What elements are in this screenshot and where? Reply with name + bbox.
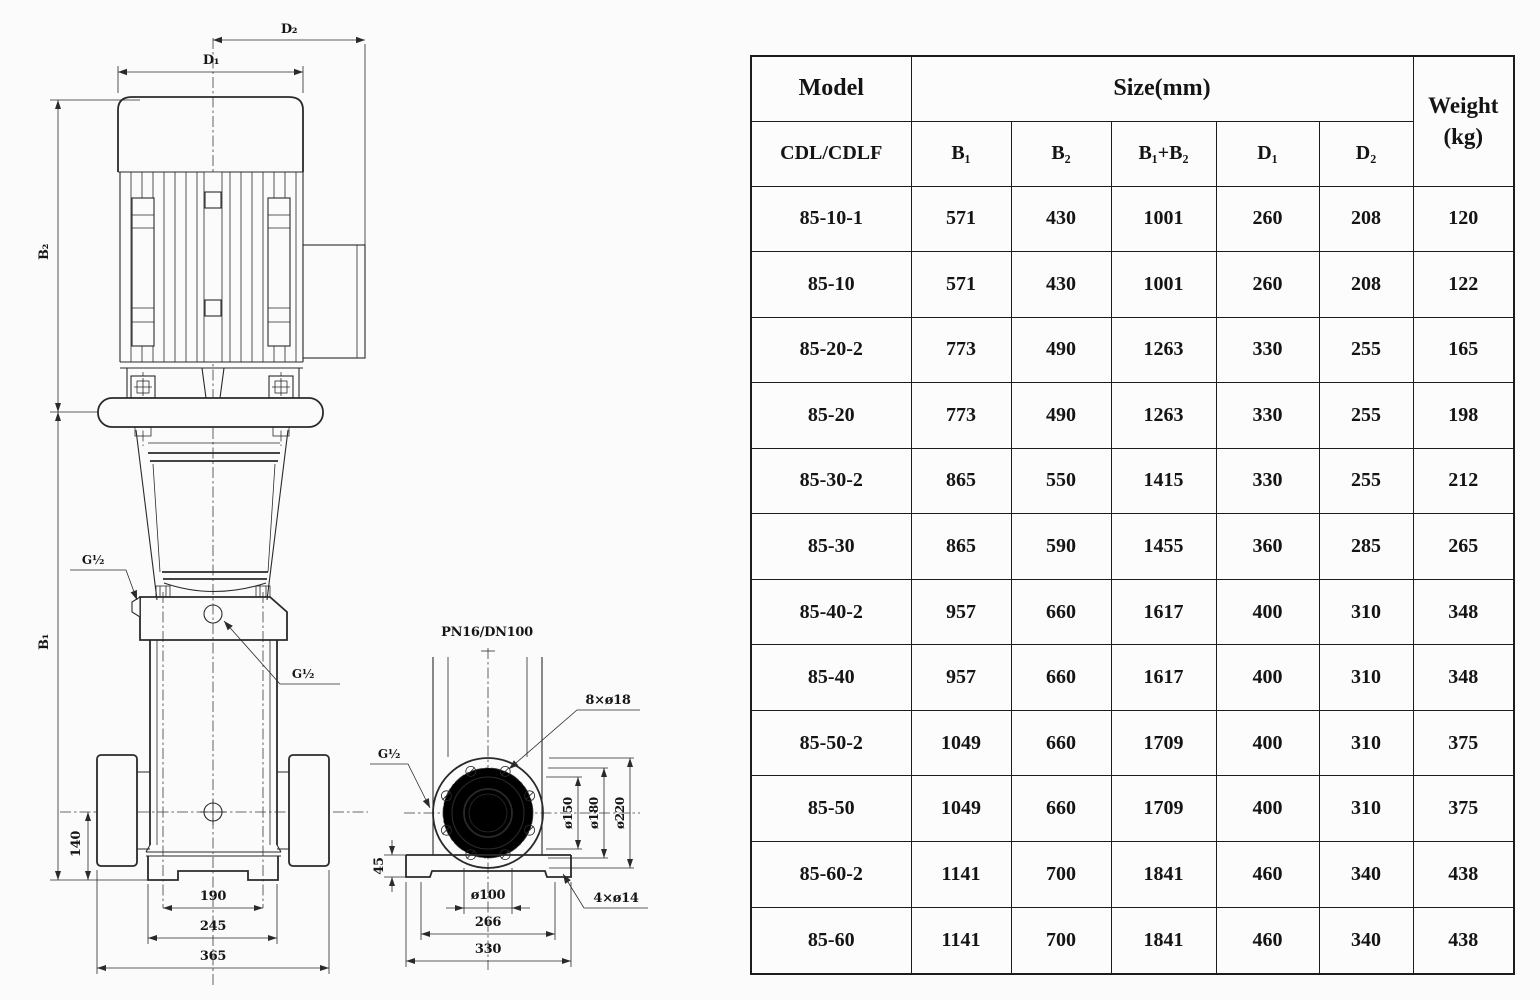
cell: 400 — [1216, 776, 1319, 842]
cell: 1617 — [1111, 579, 1216, 645]
cell: 375 — [1413, 710, 1514, 776]
cell: 122 — [1413, 252, 1514, 318]
dim-45-label: 45 — [372, 857, 387, 875]
pump-technical-drawing: D₂ D₁ B₂ B₁ — [0, 0, 740, 1000]
dim-d1-label: D₁ — [203, 53, 219, 68]
port-leader-right — [224, 621, 340, 684]
cell-model: 85-50-2 — [751, 710, 911, 776]
header-model: Model — [751, 56, 911, 121]
header-col-d2: D₂ — [1319, 121, 1413, 186]
cell: 348 — [1413, 645, 1514, 711]
cell: 1709 — [1111, 776, 1216, 842]
dim-330-label: 330 — [475, 942, 501, 957]
header-model-series: CDL/CDLF — [751, 121, 911, 186]
dim-45 — [384, 840, 406, 892]
cell: 571 — [911, 186, 1011, 252]
cell: 255 — [1319, 317, 1413, 383]
cell: 660 — [1011, 645, 1111, 711]
cell: 590 — [1011, 514, 1111, 580]
dim-d2-label: D₂ — [281, 22, 297, 37]
cell: 265 — [1413, 514, 1514, 580]
cell: 490 — [1011, 317, 1111, 383]
cell: 375 — [1413, 776, 1514, 842]
cell-model: 85-20 — [751, 383, 911, 449]
cell-model: 85-40-2 — [751, 579, 911, 645]
header-weight: Weight (kg) — [1413, 56, 1514, 186]
cell: 310 — [1319, 710, 1413, 776]
cell: 330 — [1216, 383, 1319, 449]
table-row: 85-5010496601709400310375 — [751, 776, 1514, 842]
header-col-b1: B₁ — [911, 121, 1011, 186]
cell: 700 — [1011, 907, 1111, 974]
dim-d1 — [118, 66, 303, 93]
cell: 438 — [1413, 907, 1514, 974]
table-row: 85-20-27734901263330255165 — [751, 317, 1514, 383]
cell: 1263 — [1111, 317, 1216, 383]
header-row-1: Model Size(mm) Weight (kg) — [751, 56, 1514, 121]
cell: 400 — [1216, 645, 1319, 711]
cell: 1263 — [1111, 383, 1216, 449]
cell: 438 — [1413, 841, 1514, 907]
cell: 550 — [1011, 448, 1111, 514]
coupling-lantern — [136, 430, 288, 600]
header-col-d1: D₁ — [1216, 121, 1319, 186]
cell: 212 — [1413, 448, 1514, 514]
cell: 1455 — [1111, 514, 1216, 580]
cell: 1141 — [911, 841, 1011, 907]
cell: 310 — [1319, 579, 1413, 645]
cell: 120 — [1413, 186, 1514, 252]
motor — [118, 97, 365, 398]
header-weight-line1: Weight — [1414, 90, 1514, 121]
cell: 571 — [911, 252, 1011, 318]
cell: 430 — [1011, 186, 1111, 252]
port-leader-left — [70, 570, 137, 600]
dim-140-label: 140 — [69, 831, 84, 857]
cell: 1617 — [1111, 645, 1216, 711]
cell: 198 — [1413, 383, 1514, 449]
flange-port-leader — [370, 764, 430, 808]
cell: 310 — [1319, 645, 1413, 711]
port-label-right: G½ — [292, 667, 314, 681]
flange-view: PN16/DN100 — [370, 625, 648, 970]
cell: 260 — [1216, 252, 1319, 318]
cell: 260 — [1216, 186, 1319, 252]
dim-266-label: 266 — [475, 915, 501, 930]
table-row: 85-207734901263330255198 — [751, 383, 1514, 449]
header-size-group: Size(mm) — [911, 56, 1413, 121]
cell: 773 — [911, 383, 1011, 449]
cell-model: 85-40 — [751, 645, 911, 711]
bolt-holes-leader — [509, 710, 640, 769]
cell: 1049 — [911, 776, 1011, 842]
cell: 773 — [911, 317, 1011, 383]
dimension-table: Model Size(mm) Weight (kg) CDL/CDLF B₁ B… — [750, 55, 1515, 975]
cell-model: 85-50 — [751, 776, 911, 842]
table-row: 85-6011417001841460340438 — [751, 907, 1514, 974]
cell-model: 85-20-2 — [751, 317, 911, 383]
dim-dia180-label: ø180 — [587, 797, 601, 829]
cell: 957 — [911, 645, 1011, 711]
table-row: 85-105714301001260208122 — [751, 252, 1514, 318]
header-col-b2: B₂ — [1011, 121, 1111, 186]
cell: 460 — [1216, 841, 1319, 907]
pump-base — [146, 845, 281, 880]
dim-190-label: 190 — [200, 889, 226, 904]
flange-disc — [433, 758, 543, 868]
cell: 340 — [1319, 841, 1413, 907]
cell: 1415 — [1111, 448, 1216, 514]
dim-140 — [85, 812, 91, 880]
cell: 1141 — [911, 907, 1011, 974]
dim-245-label: 245 — [200, 919, 226, 934]
cell-model: 85-30-2 — [751, 448, 911, 514]
table-row: 85-10-15714301001260208120 — [751, 186, 1514, 252]
cell: 700 — [1011, 841, 1111, 907]
motor-stool-plate — [98, 376, 323, 436]
cell: 340 — [1319, 907, 1413, 974]
dim-b1-label: B₁ — [37, 634, 52, 650]
cell: 865 — [911, 514, 1011, 580]
cell: 285 — [1319, 514, 1413, 580]
table-row: 85-40-29576601617400310348 — [751, 579, 1514, 645]
table-row: 85-50-210496601709400310375 — [751, 710, 1514, 776]
table-row: 85-409576601617400310348 — [751, 645, 1514, 711]
bolt-holes-label: 8×ø18 — [585, 693, 630, 708]
table-row: 85-60-211417001841460340438 — [751, 841, 1514, 907]
cell: 660 — [1011, 710, 1111, 776]
cell: 430 — [1011, 252, 1111, 318]
cell: 865 — [911, 448, 1011, 514]
cell: 460 — [1216, 907, 1319, 974]
cell-model: 85-60 — [751, 907, 911, 974]
flange-spec-label: PN16/DN100 — [441, 625, 533, 640]
cell: 490 — [1011, 383, 1111, 449]
front-view: D₂ D₁ B₂ B₁ — [37, 22, 368, 985]
cell: 208 — [1319, 186, 1413, 252]
header-row-2: CDL/CDLF B₁ B₂ B₁+B₂ D₁ D₂ — [751, 121, 1514, 186]
flange-view-base — [406, 855, 571, 877]
cell-model: 85-10 — [751, 252, 911, 318]
cell: 360 — [1216, 514, 1319, 580]
header-col-b1b2: B₁+B₂ — [1111, 121, 1216, 186]
cell: 348 — [1413, 579, 1514, 645]
cell: 1001 — [1111, 186, 1216, 252]
cell: 255 — [1319, 383, 1413, 449]
dim-b2-label: B₂ — [37, 244, 52, 260]
base-holes-label: 4×ø14 — [593, 891, 638, 906]
cell: 400 — [1216, 710, 1319, 776]
port-label-left: G½ — [82, 553, 104, 567]
dim-dia220-label: ø220 — [613, 797, 627, 829]
cell: 310 — [1319, 776, 1413, 842]
cell: 330 — [1216, 317, 1319, 383]
cell-model: 85-30 — [751, 514, 911, 580]
cell: 957 — [911, 579, 1011, 645]
table-row: 85-308655901455360285265 — [751, 514, 1514, 580]
cell: 660 — [1011, 776, 1111, 842]
pump-head — [132, 586, 287, 640]
cell: 1841 — [1111, 907, 1216, 974]
dim-dia150-label: ø150 — [561, 797, 575, 829]
cell-model: 85-60-2 — [751, 841, 911, 907]
dim-dia100-label: ø100 — [471, 888, 506, 903]
flange-port-label: G½ — [378, 747, 400, 761]
header-weight-line2: (kg) — [1414, 121, 1514, 152]
cell: 1001 — [1111, 252, 1216, 318]
table-row: 85-30-28655501415330255212 — [751, 448, 1514, 514]
cell: 1049 — [911, 710, 1011, 776]
dim-365-label: 365 — [200, 949, 226, 964]
cell: 400 — [1216, 579, 1319, 645]
cell: 1709 — [1111, 710, 1216, 776]
cell: 255 — [1319, 448, 1413, 514]
cell: 208 — [1319, 252, 1413, 318]
cell: 1841 — [1111, 841, 1216, 907]
cell: 330 — [1216, 448, 1319, 514]
cell: 165 — [1413, 317, 1514, 383]
cell: 660 — [1011, 579, 1111, 645]
cell-model: 85-10-1 — [751, 186, 911, 252]
